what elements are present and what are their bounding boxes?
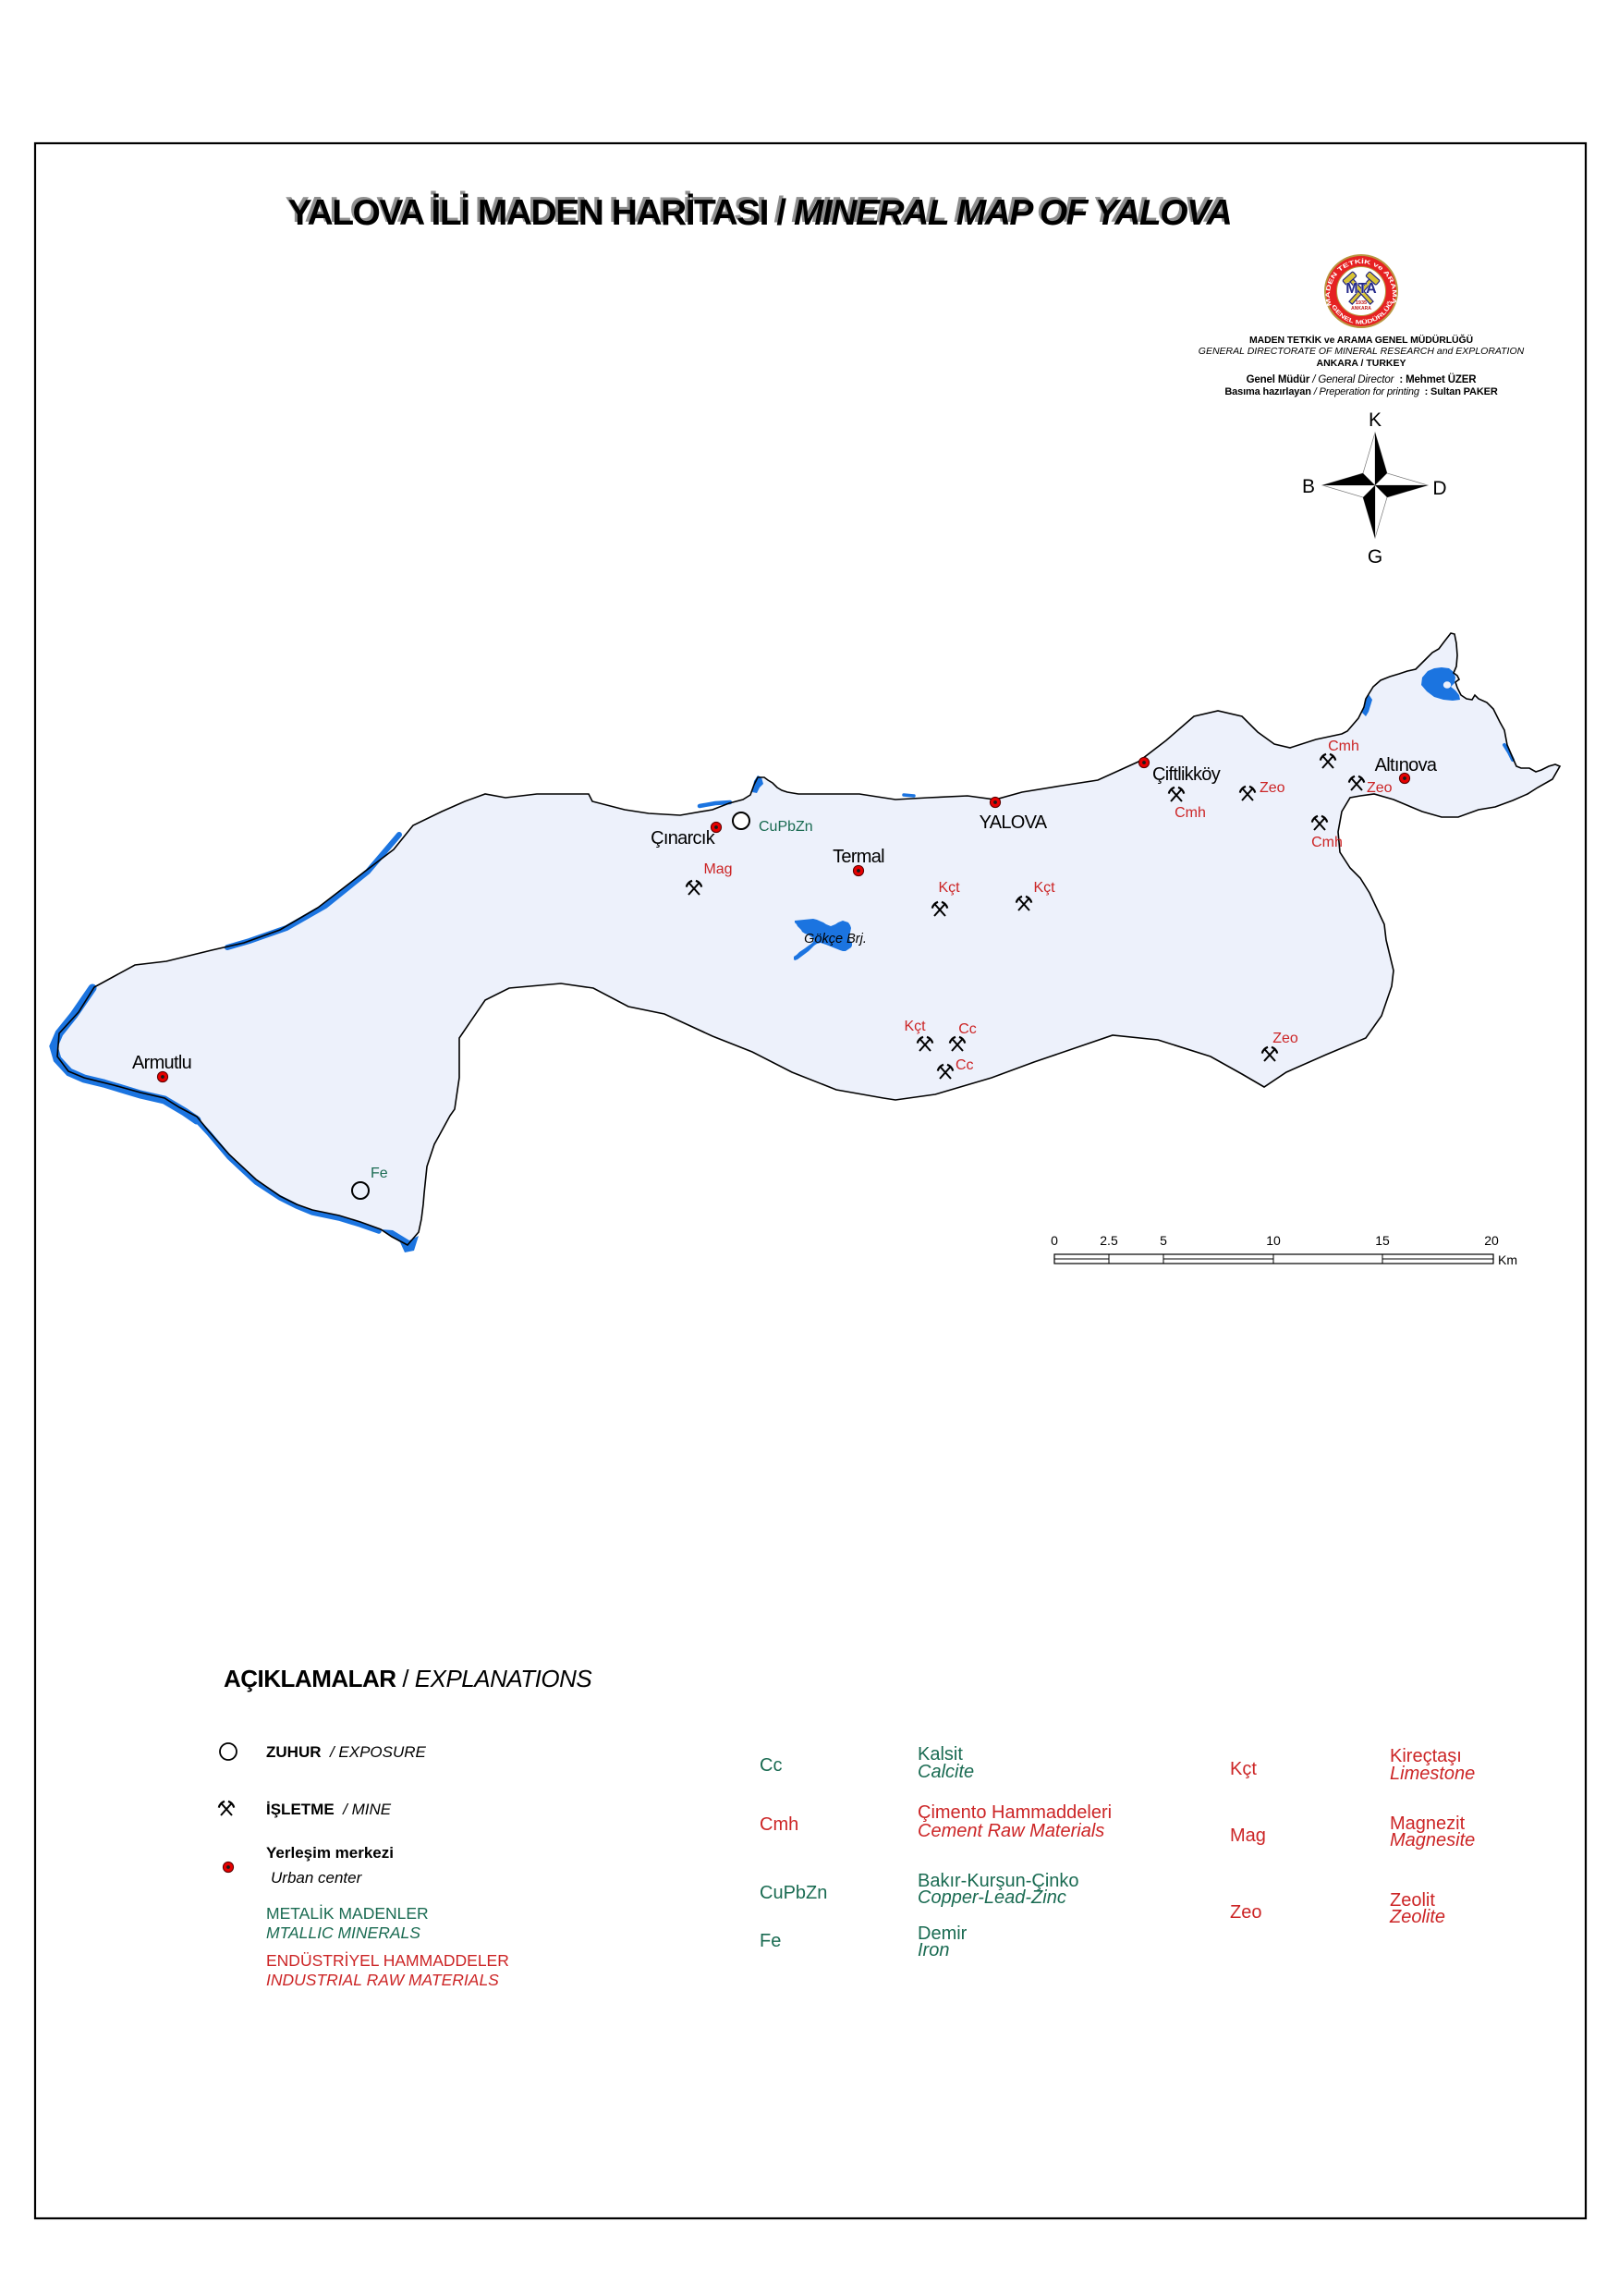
svg-text:Zeo: Zeo: [1230, 1902, 1261, 1923]
svg-text:Cement Raw Materials: Cement Raw Materials: [918, 1821, 1104, 1841]
svg-text:MTA: MTA: [1345, 281, 1377, 297]
svg-text:GENERAL DIRECTORATE OF MINERAL: GENERAL DIRECTORATE OF MINERAL RESEARCH …: [1199, 346, 1525, 357]
svg-text:MADEN TETKİK ve ARAMA GENEL MÜ: MADEN TETKİK ve ARAMA GENEL MÜDÜRLÜĞÜ: [1249, 334, 1473, 346]
svg-text:Basıma hazırlayan / Preperatio: Basıma hazırlayan / Preperation for prin…: [1224, 386, 1497, 397]
svg-text:ZUHUR / EXPOSURE: ZUHUR / EXPOSURE: [266, 1743, 427, 1761]
svg-text:Cc: Cc: [956, 1057, 974, 1073]
svg-text:G: G: [1368, 546, 1382, 568]
svg-text:15: 15: [1375, 1233, 1390, 1248]
svg-text:Zeo: Zeo: [1367, 780, 1393, 796]
svg-text:Fe: Fe: [760, 1931, 781, 1951]
svg-text:0: 0: [1051, 1233, 1058, 1248]
svg-text:Zeo: Zeo: [1272, 1031, 1298, 1046]
svg-text:INDUSTRIAL RAW MATERIALS: INDUSTRIAL RAW MATERIALS: [266, 1971, 499, 1989]
svg-text:Copper-Lead-Zinc: Copper-Lead-Zinc: [918, 1887, 1066, 1908]
svg-text:Kçt: Kçt: [1230, 1759, 1257, 1779]
svg-text:Calcite: Calcite: [918, 1762, 974, 1782]
svg-text:CuPbZn: CuPbZn: [760, 1883, 827, 1903]
svg-text:ENDÜSTRİYEL HAMMADDELER: ENDÜSTRİYEL HAMMADDELER: [266, 1951, 509, 1970]
svg-text:Fe: Fe: [371, 1166, 388, 1181]
svg-text:Cmh: Cmh: [760, 1814, 798, 1835]
svg-text:20: 20: [1484, 1233, 1499, 1248]
svg-text:Kçt: Kçt: [938, 880, 960, 896]
svg-text:CuPbZn: CuPbZn: [759, 819, 813, 835]
svg-text:D: D: [1432, 478, 1446, 499]
svg-text:Çimento Hammaddeleri: Çimento Hammaddeleri: [918, 1802, 1112, 1823]
svg-text:Çiftlikköy: Çiftlikköy: [1152, 764, 1221, 785]
svg-text:Cmh: Cmh: [1328, 739, 1359, 754]
svg-text:Cc: Cc: [760, 1755, 782, 1776]
svg-text:Limestone: Limestone: [1390, 1764, 1475, 1784]
svg-text:Yerleşim merkezi: Yerleşim merkezi: [266, 1844, 394, 1862]
svg-text:Urban center: Urban center: [271, 1869, 363, 1887]
svg-text:METALİK MADENLER: METALİK MADENLER: [266, 1904, 429, 1923]
svg-text:Gökçe Brj.: Gökçe Brj.: [804, 932, 867, 946]
svg-text:Çınarcık: Çınarcık: [651, 828, 716, 849]
svg-text:Mag: Mag: [703, 861, 732, 877]
svg-text:MTALLIC MINERALS: MTALLIC MINERALS: [266, 1924, 420, 1942]
svg-text:ANKARA / TURKEY: ANKARA / TURKEY: [1316, 358, 1406, 369]
svg-text:Altınova: Altınova: [1375, 755, 1438, 776]
svg-text:YALOVA İLİ MADEN HARİTASI / MI: YALOVA İLİ MADEN HARİTASI / MINERAL MAP …: [288, 193, 1232, 233]
svg-text:5: 5: [1160, 1233, 1167, 1248]
svg-text:Magnesite: Magnesite: [1390, 1830, 1475, 1850]
svg-text:Km: Km: [1498, 1252, 1517, 1267]
svg-text:AÇIKLAMALAR / EXPLANATIONS: AÇIKLAMALAR / EXPLANATIONS: [224, 1665, 592, 1692]
svg-text:10: 10: [1266, 1233, 1281, 1248]
svg-text:Kçt: Kçt: [904, 1019, 926, 1034]
svg-text:Iron: Iron: [918, 1940, 949, 1960]
svg-text:Zeo: Zeo: [1260, 780, 1285, 796]
svg-text:2.5: 2.5: [1100, 1233, 1118, 1248]
svg-text:Mag: Mag: [1230, 1826, 1266, 1846]
svg-text:Cmh: Cmh: [1175, 805, 1206, 821]
svg-text:Termal: Termal: [833, 847, 884, 867]
svg-text:B: B: [1302, 476, 1315, 497]
svg-text:K: K: [1369, 409, 1382, 431]
svg-text:Cmh: Cmh: [1311, 835, 1343, 850]
svg-text:Genel Müdür / General Director: Genel Müdür / General Director : Mehmet …: [1247, 373, 1478, 385]
svg-text:ANKARA: ANKARA: [1351, 306, 1371, 311]
svg-text:Cc: Cc: [958, 1021, 977, 1037]
svg-text:YALOVA: YALOVA: [980, 812, 1048, 833]
svg-text:Armutlu: Armutlu: [132, 1053, 191, 1073]
svg-text:İŞLETME / MINE: İŞLETME / MINE: [266, 1801, 392, 1818]
svg-text:GENEL MÜDÜRLÜĞÜ: GENEL MÜDÜRLÜĞÜ: [0, 0, 1394, 326]
svg-text:Zeolite: Zeolite: [1389, 1907, 1445, 1927]
svg-text:Kçt: Kçt: [1033, 880, 1055, 896]
